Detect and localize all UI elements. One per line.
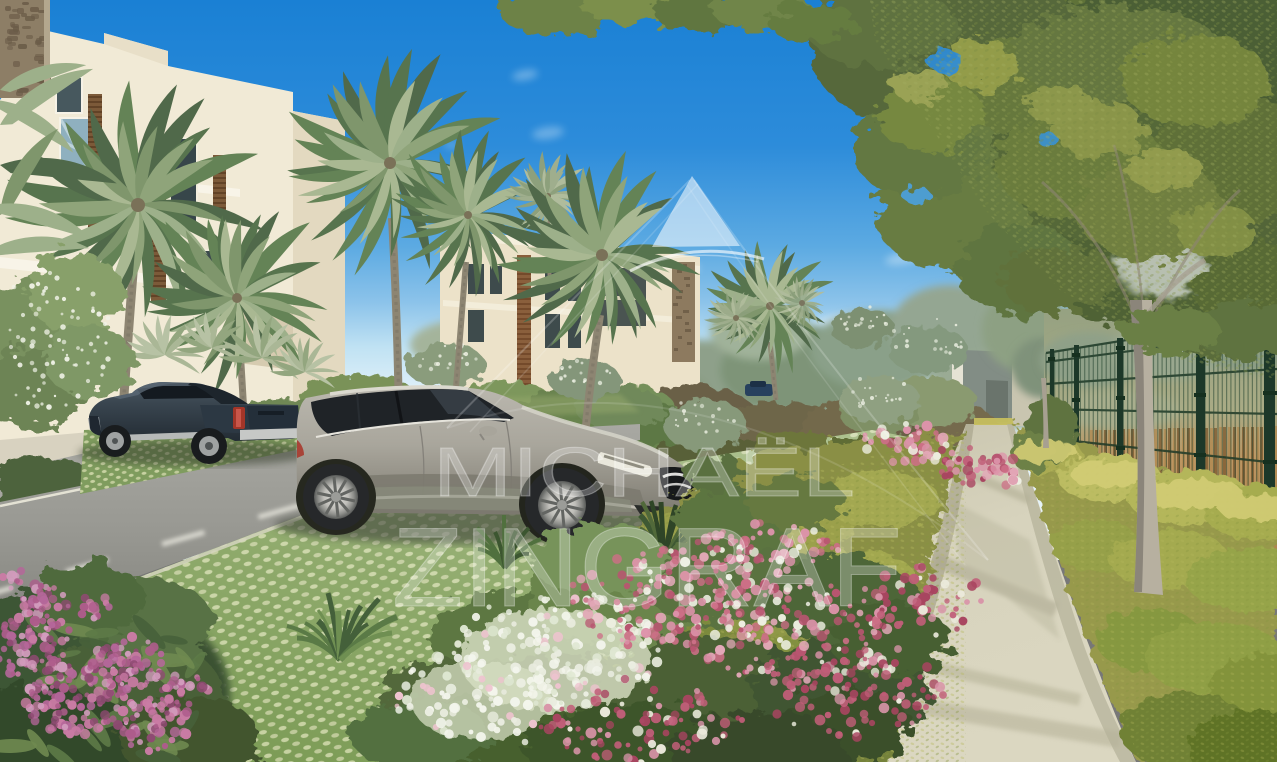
- svg-text:ZINGRAF: ZINGRAF: [392, 505, 902, 630]
- svg-text:MICHAËL: MICHAËL: [433, 433, 855, 511]
